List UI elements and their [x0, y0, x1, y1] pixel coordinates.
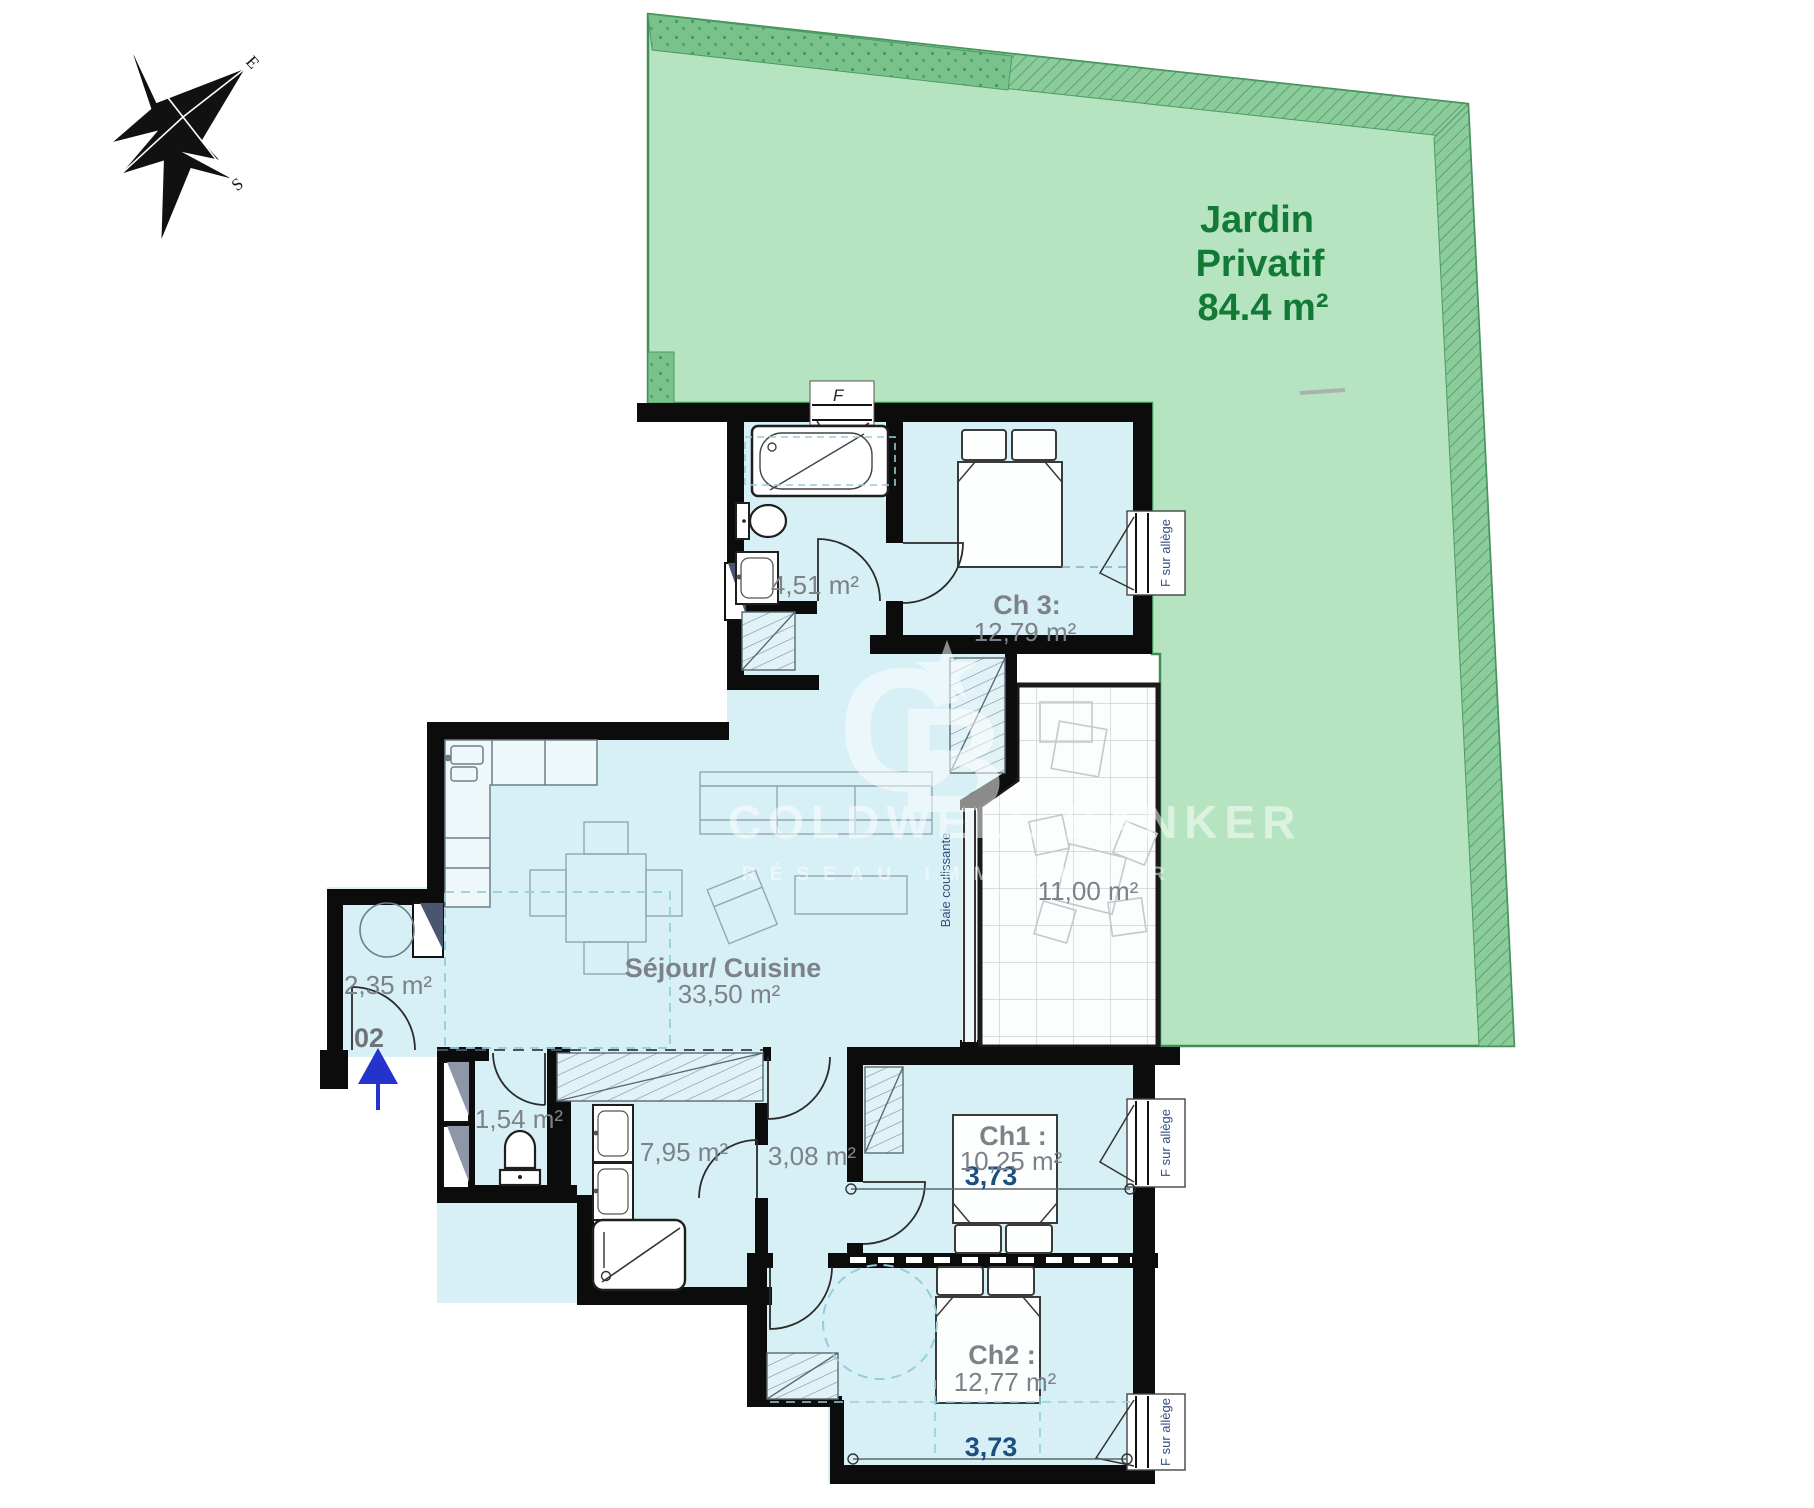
garden-hedge-corner — [648, 352, 674, 403]
watermark-brand-text: COLDWELL BANKER — [728, 796, 1302, 848]
entry-area-label: 2,35 m² — [344, 970, 432, 1000]
ch1-area-label: 10,25 m² — [960, 1146, 1063, 1176]
garden-title-line2: Privatif — [1196, 243, 1325, 285]
hall-area-label: 3,08 m² — [768, 1141, 856, 1171]
dimension-ch2-value: 3,73 — [965, 1432, 1018, 1462]
ch3-name-label: Ch 3: — [993, 590, 1061, 620]
garden-title-line1: Jardin — [1200, 199, 1314, 241]
garden-label: Jardin Privatif 84.4 m² — [1196, 199, 1329, 329]
ch2-area-label: 12,77 m² — [954, 1367, 1057, 1397]
floor-plan-svg: Jardin Privatif 84.4 m² 11,00 m² — [0, 0, 1814, 1508]
sejour-area-label: 33,50 m² — [678, 979, 781, 1009]
compass-south-label: S — [228, 174, 247, 195]
unit-number-label: 02 — [354, 1023, 384, 1053]
toilet-wc — [500, 1131, 540, 1185]
garden-area-label: 84.4 m² — [1198, 287, 1329, 329]
toilet-bathroom — [736, 503, 786, 539]
window-sill-label-ch1: F sur allège — [1158, 1109, 1173, 1177]
ch3-area-label: 12,79 m² — [974, 617, 1077, 647]
window-f-tag: F — [833, 386, 845, 405]
ch2-name-label: Ch2 : — [968, 1340, 1036, 1370]
floor-plan-page: Jardin Privatif 84.4 m² 11,00 m² — [0, 0, 1814, 1508]
wc-area-label: 1,54 m² — [475, 1104, 563, 1134]
bathroom-area-label: 4,51 m² — [771, 570, 859, 600]
shower-tray — [593, 1220, 685, 1290]
shower-room-area-label: 7,95 m² — [640, 1137, 728, 1167]
compass-east-label: E — [242, 52, 263, 72]
window-sill-label-ch2: F sur allège — [1158, 1398, 1173, 1466]
watermark-tagline-text: RÉSEAU IMMOBILIER — [742, 863, 1178, 885]
compass-rose: E S — [113, 52, 263, 239]
window-sill-label-ch3: F sur allège — [1158, 519, 1173, 587]
entry-arrow — [358, 1048, 398, 1110]
